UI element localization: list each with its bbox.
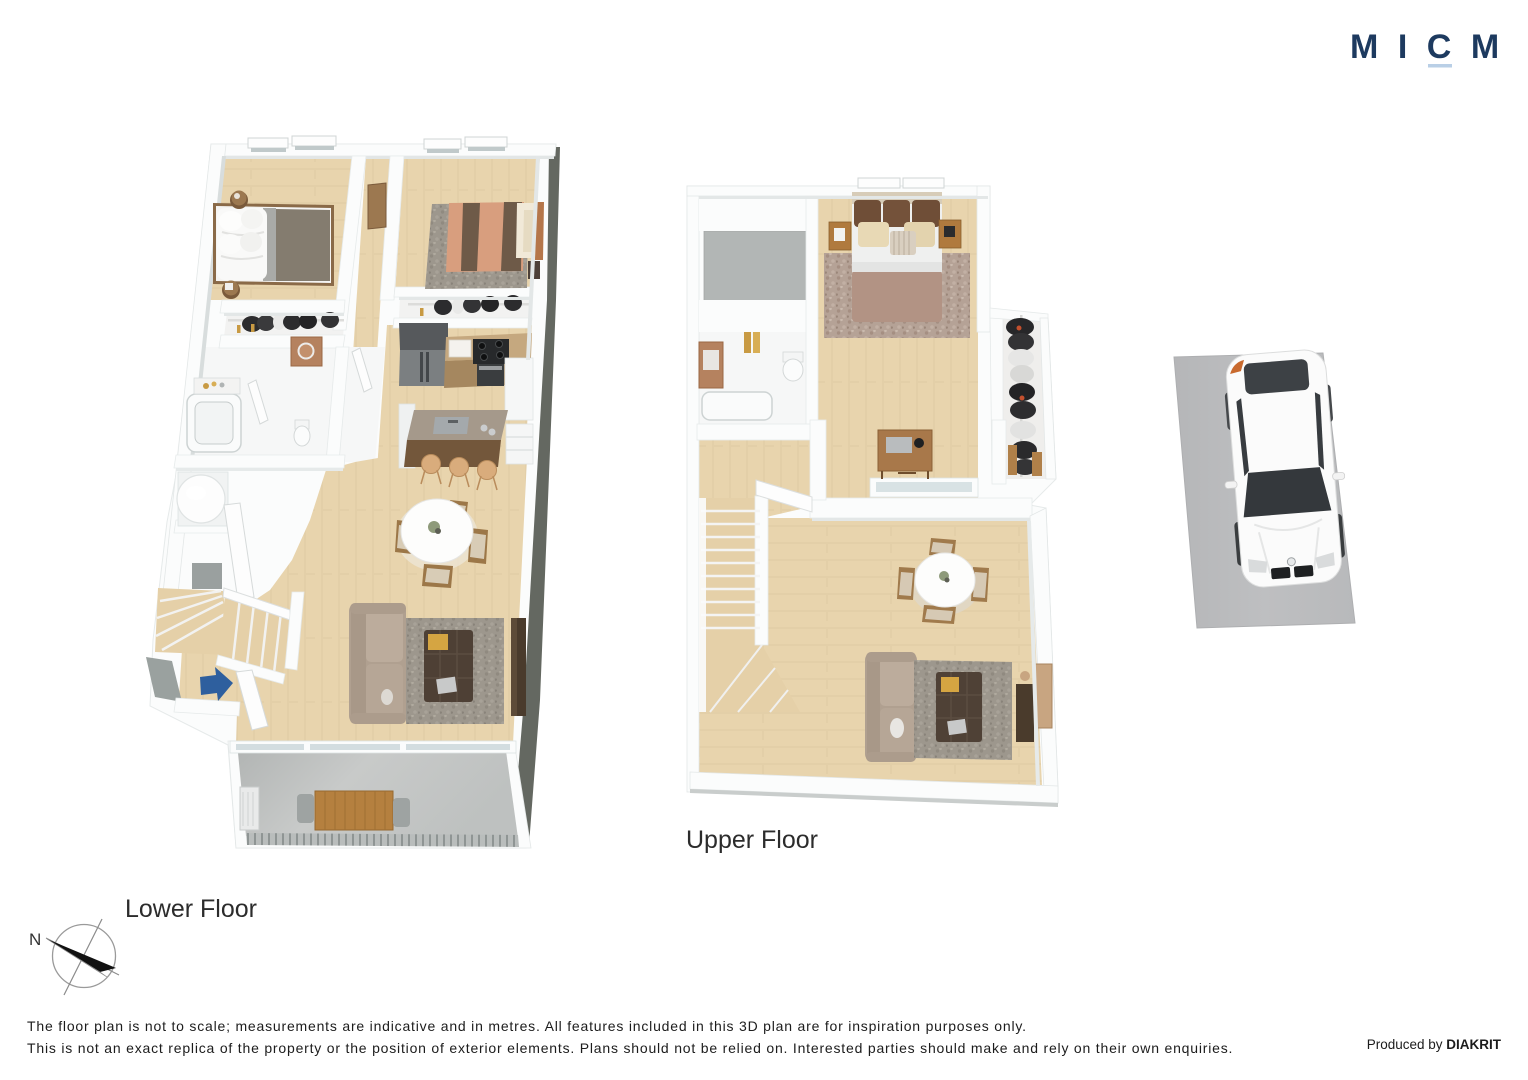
svg-text:This is not an exact replica o: This is not an exact replica of the prop… (27, 1040, 1233, 1056)
svg-text:The floor plan is not to scale: The floor plan is not to scale; measurem… (27, 1018, 1027, 1034)
svg-text:N: N (29, 930, 41, 949)
svg-text:Upper Floor: Upper Floor (686, 826, 818, 854)
svg-text:Lower Floor: Lower Floor (125, 895, 257, 923)
svg-text:MICM: MICM (1350, 28, 1519, 66)
svg-text:Produced by DIAKRIT: Produced by DIAKRIT (1367, 1037, 1502, 1052)
